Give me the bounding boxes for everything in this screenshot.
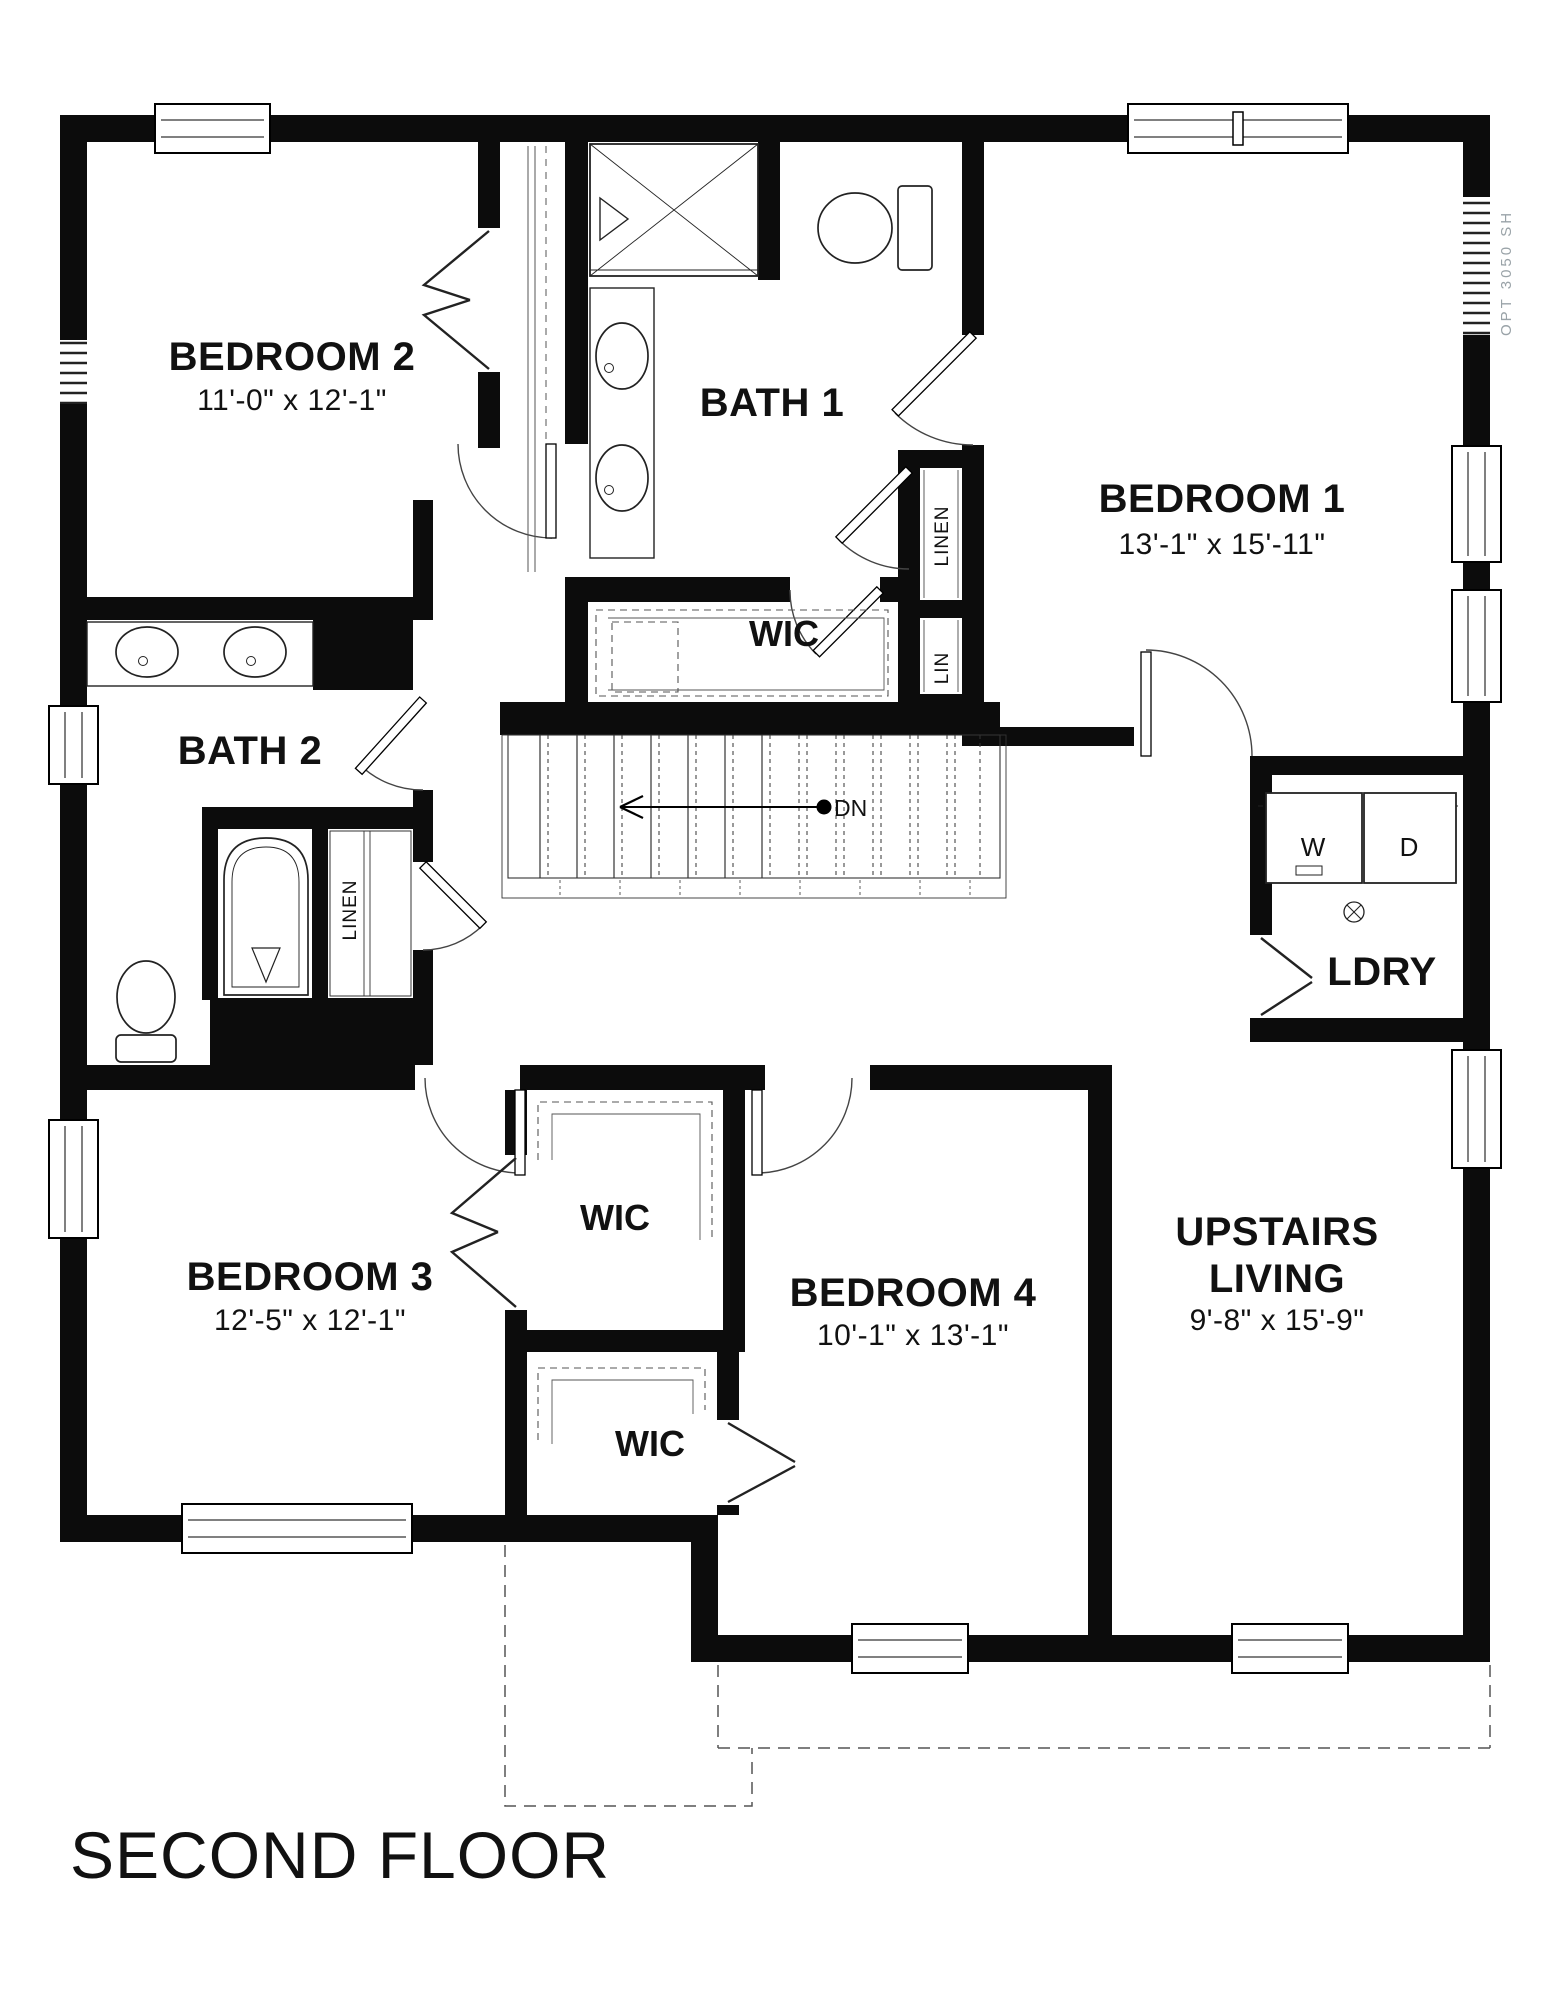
window-bath2-left xyxy=(49,706,98,784)
bifold-closet-bedroom2 xyxy=(424,231,489,369)
window-hall-right xyxy=(1452,590,1501,702)
window-bedroom4-bottom xyxy=(852,1624,968,1673)
sink xyxy=(224,627,286,677)
bedroom4-dims: 10'-1" x 13'-1" xyxy=(817,1319,1009,1352)
bedroom2-label: BEDROOM 2 xyxy=(169,335,416,379)
bifold-wic-bedroom4 xyxy=(728,1423,795,1502)
bedroom3-label: BEDROOM 3 xyxy=(187,1255,434,1299)
upstairs-living-label-line1: UPSTAIRS xyxy=(1175,1210,1378,1254)
wic-bedroom4-label: WIC xyxy=(615,1423,685,1464)
linen-bath1-label: LINEN xyxy=(932,506,953,567)
bedroom4-label: BEDROOM 4 xyxy=(790,1271,1037,1315)
washer-dryer xyxy=(1258,793,1458,883)
floor-plan-page: BEDROOM 2 11'-0" x 12'-1" BATH 1 BEDROOM… xyxy=(0,0,1545,2000)
bedroom3-dims: 12'-5" x 12'-1" xyxy=(214,1304,406,1337)
floor-drain-icon xyxy=(1344,902,1364,922)
window-bedroom3-bottom xyxy=(182,1504,412,1553)
laundry-label: LDRY xyxy=(1327,950,1436,994)
door-bath1 xyxy=(892,332,976,445)
sink xyxy=(596,445,648,511)
bath1-label: BATH 1 xyxy=(700,381,844,425)
window-bedroom2-top xyxy=(155,104,270,153)
upstairs-living-label-line2: LIVING xyxy=(1209,1257,1345,1301)
stairs-dn-label: DN xyxy=(834,795,867,821)
sink xyxy=(596,323,648,389)
plan-title: SECOND FLOOR xyxy=(70,1818,610,1892)
window-bedroom3-left xyxy=(49,1120,98,1238)
bath2-label: BATH 2 xyxy=(178,729,322,773)
closet-bedroom2-rod xyxy=(528,146,546,572)
bifold-laundry xyxy=(1261,938,1312,1015)
sink xyxy=(116,627,178,677)
vanity-bath2 xyxy=(87,622,313,686)
door-bath2 xyxy=(355,697,426,790)
bedroom1-dims: 13'-1" x 15'-11" xyxy=(1119,528,1326,561)
window-upstairs-living-right xyxy=(1452,1050,1501,1168)
door-linen-bath2 xyxy=(420,862,486,950)
bathtub-bath2 xyxy=(224,838,308,995)
toilet-bath2 xyxy=(116,961,176,1062)
door-bedroom2 xyxy=(458,444,556,538)
vanity-bath1 xyxy=(590,288,654,558)
stairs xyxy=(502,735,1006,898)
bedroom1-label: BEDROOM 1 xyxy=(1099,477,1346,521)
shower-bath1 xyxy=(590,144,758,276)
bifold-wic-bedroom3 xyxy=(452,1158,516,1307)
opt-window-note: OPT 3050 SH xyxy=(1498,210,1515,336)
hatched-wall-right-opt xyxy=(1463,197,1490,335)
window-upstairs-living-bottom xyxy=(1232,1624,1348,1673)
lin-bath1-label: LIN xyxy=(932,652,953,685)
window-bedroom1-top xyxy=(1128,104,1348,153)
floor-plan-drawing: BEDROOM 2 11'-0" x 12'-1" BATH 1 BEDROOM… xyxy=(0,0,1545,2000)
hatched-wall-left xyxy=(60,340,87,404)
window-bedroom1-right xyxy=(1452,446,1501,562)
linen-bath2-label: LINEN xyxy=(340,880,361,941)
door-bedroom1 xyxy=(1141,650,1252,756)
bedroom2-dims: 11'-0" x 12'-1" xyxy=(197,384,387,417)
wic-upper-label: WIC xyxy=(749,613,819,654)
washer-label: W xyxy=(1301,832,1326,862)
stair-rail-ticks xyxy=(560,880,970,896)
door-bedroom4 xyxy=(752,1078,852,1175)
wic-bedroom3-label: WIC xyxy=(580,1197,650,1238)
toilet-bath1 xyxy=(818,186,932,270)
roof-below-outline xyxy=(505,1545,1490,1806)
upstairs-living-dims: 9'-8" x 15'-9" xyxy=(1190,1304,1365,1337)
dryer-label: D xyxy=(1400,832,1419,862)
